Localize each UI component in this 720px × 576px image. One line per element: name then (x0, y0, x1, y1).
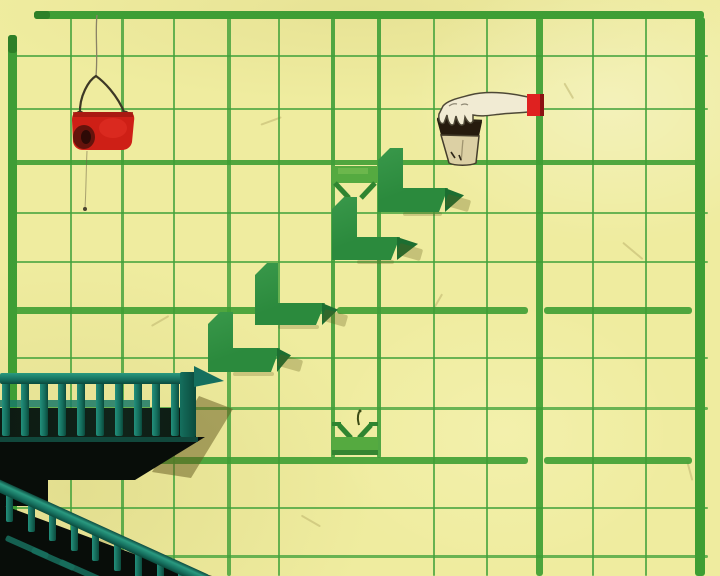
grid-line-h-thick (337, 307, 528, 314)
arm-and-hand (439, 93, 528, 126)
pouring-hand-with-cup[interactable] (415, 78, 545, 178)
grid-line-h (10, 555, 708, 558)
bucket-string (96, 15, 97, 76)
step-under-shadow (233, 372, 274, 376)
grid-line-h-thick (544, 457, 692, 464)
grid-line-v (173, 14, 175, 576)
step-under-shadow (357, 260, 394, 264)
bucket-handle (80, 76, 125, 114)
pour-art (415, 78, 545, 178)
grid-line-v (227, 14, 231, 576)
plumb-weight (83, 207, 87, 211)
channel-bottom-socket[interactable] (326, 408, 388, 460)
step-under-shadow (403, 212, 442, 216)
bottom-socket-art (326, 408, 388, 460)
bucket-art (55, 8, 145, 223)
scene-canvas (0, 0, 720, 576)
step-face (255, 263, 325, 325)
grid-line-v (645, 14, 647, 576)
grid-border-cap (8, 35, 17, 53)
grid-border-left (8, 35, 17, 576)
grid-border-right (695, 17, 705, 576)
paper-cup (441, 135, 479, 165)
step-under-shadow (278, 325, 319, 329)
step-block-2[interactable] (255, 263, 325, 325)
grid-line-h (10, 507, 708, 509)
plumb-string (85, 151, 87, 208)
grid-line-v (592, 14, 594, 576)
grid-line-h (10, 357, 708, 359)
hanging-red-bucket[interactable] (55, 8, 145, 223)
grid-line-h-thick (544, 307, 692, 314)
grid-border-cap (34, 11, 50, 19)
